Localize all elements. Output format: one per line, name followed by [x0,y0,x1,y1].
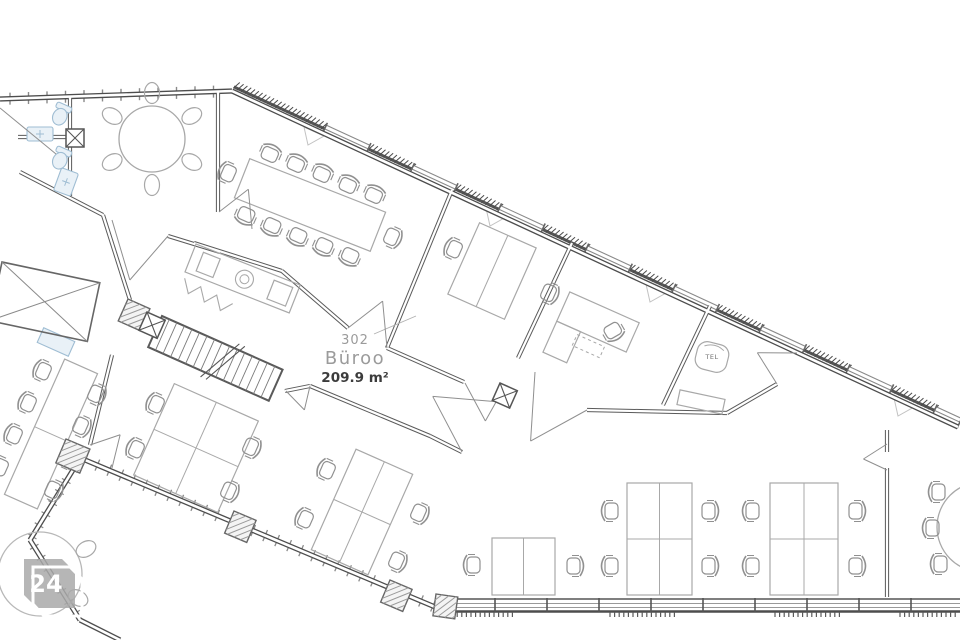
door-swings [0,108,887,470]
floorplan-page: 302 Büroo 209.9 m² TEL 24 [0,0,960,640]
floorplan-drawing [0,0,960,640]
furniture [0,83,960,617]
staircase [146,311,285,407]
elevator-shaft [0,262,100,341]
logo-badge-24 [24,559,82,616]
